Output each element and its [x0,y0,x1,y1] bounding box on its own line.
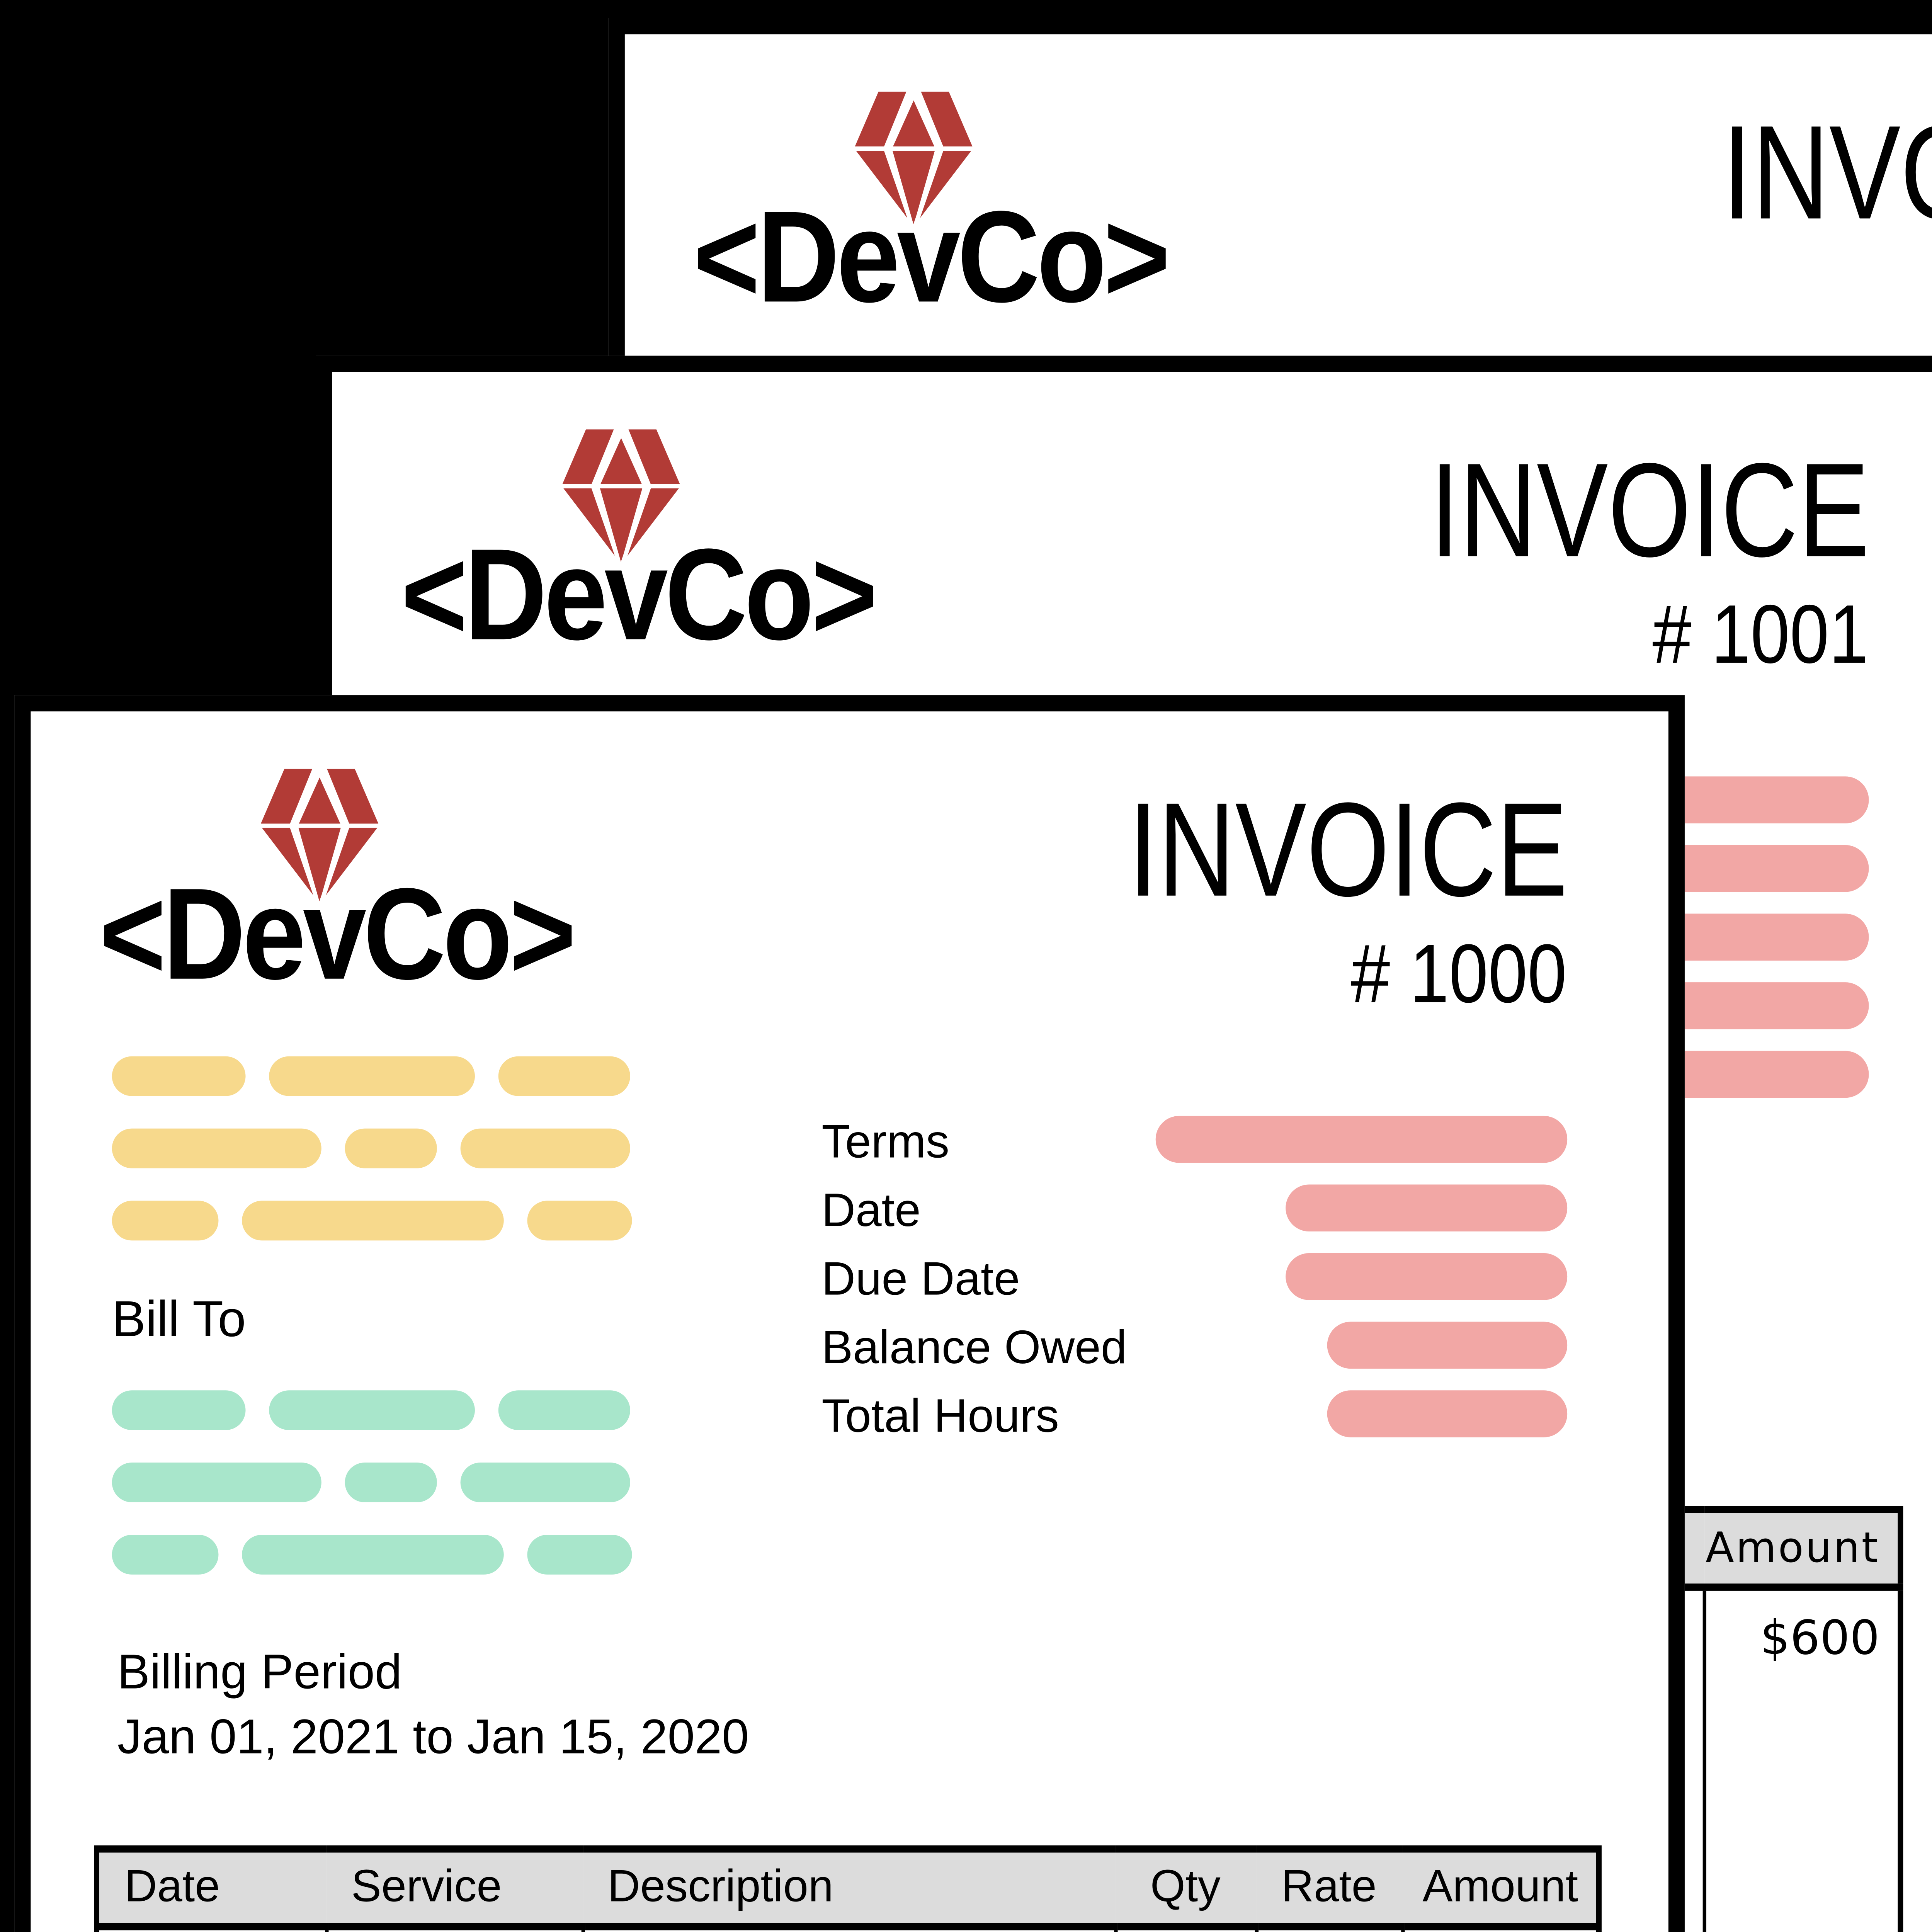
cell-rate: $100 [1256,1927,1402,1932]
address-placeholder-bar [112,1129,321,1168]
placeholder-row [112,1390,654,1430]
invoice-number: # 1001 [1123,592,1869,675]
bill-to-label: Bill To [112,1291,246,1349]
balance-owed-value-placeholder-bar [1327,1322,1568,1369]
address-placeholder-bar [242,1201,504,1241]
bill-to-placeholder-bar [269,1390,475,1430]
invoice-meta: Terms Date Due Date Balance Owed Total H… [821,1107,1567,1450]
date-value-placeholder-bar [1286,1184,1567,1231]
header-date: Date [97,1849,326,1927]
bill-to-placeholder-bar [112,1390,246,1430]
address-placeholder-bar [345,1129,437,1168]
address-placeholder-bar [527,1201,632,1241]
header-service: Service [326,1849,582,1927]
invoice-number: # 1000 [821,932,1567,1015]
header-rate: Rate [1256,1849,1402,1927]
devco-logo: <DevCo> [401,419,906,693]
address-placeholder-bar [269,1056,475,1096]
bill-to-placeholder-bar [112,1463,321,1502]
bill-to-placeholder-bar [345,1463,437,1502]
header-qty: Qty [1115,1849,1256,1927]
address-placeholder-bar [112,1056,246,1096]
meta-row-total-hours: Total Hours [821,1381,1567,1450]
devco-logo-text: <DevCo> [99,870,573,1000]
header-amount: Amount [1704,1510,1900,1587]
cell-amount: $800 [1402,1927,1599,1932]
header-description: Description [582,1849,1115,1927]
bill-to-placeholder-bar [112,1535,219,1575]
meta-row-due-date: Due Date [821,1244,1567,1313]
placeholder-row [112,1056,654,1096]
bill-to-placeholder-bar [527,1535,632,1575]
due-date-label: Due Date [821,1251,1020,1305]
meta-row-terms: Terms [821,1107,1567,1176]
invoice-page-1000: <DevCo> INVOICE # 1000 Terms Date Due Da… [14,695,1685,1932]
invoice-number: # 1002 [1416,255,1932,338]
screenshot-viewport: <DevCo> INVOICE # 1002 A [0,0,1932,1932]
invoice-title: INVOICE [821,784,1567,917]
total-hours-label: Total Hours [821,1389,1059,1443]
invoice-title: INVOICE [1416,107,1932,240]
date-label: Date [821,1183,921,1237]
cell-qty: 8 [1115,1927,1256,1932]
line-items-table: Date Service Description Qty Rate Amount… [94,1845,1602,1932]
company-address-placeholders [112,1056,654,1273]
invoice-title: INVOICE [1123,444,1869,578]
table-row: 1/1/21CodingAdd layout and components fo… [97,1927,1599,1932]
cell-amount: $600 [1704,1587,1900,1932]
total-hours-value-placeholder-bar [1327,1390,1568,1437]
bill-to-placeholder-bar [461,1463,630,1502]
cell-description: Add layout and components for the homepa… [582,1927,1115,1932]
terms-label: Terms [821,1114,949,1168]
header-amount: Amount [1402,1849,1599,1927]
address-placeholder-bar [461,1129,630,1168]
devco-logo: <DevCo> [99,759,605,1033]
due-date-value-placeholder-bar [1286,1253,1567,1300]
invoice-stack-canvas: <DevCo> INVOICE # 1002 A [0,0,1932,1932]
billing-period-range: Jan 01, 2021 to Jan 15, 2020 [117,1710,749,1766]
placeholder-row [112,1463,654,1502]
placeholder-row [112,1129,654,1168]
placeholder-row [112,1535,654,1575]
cell-service: Coding [326,1927,582,1932]
bill-to-placeholder-bar [242,1535,504,1575]
terms-value-placeholder-bar [1156,1116,1567,1163]
meta-row-date: Date [821,1175,1567,1244]
billing-period-label: Billing Period [117,1645,402,1701]
meta-row-balance-owed: Balance Owed [821,1313,1567,1381]
address-placeholder-bar [112,1201,219,1241]
table-header: Date Service Description Qty Rate Amount [97,1849,1599,1927]
cell-date: 1/1/21 [97,1927,326,1932]
bill-to-placeholder-bar [498,1390,630,1430]
bill-to-placeholders [112,1390,654,1607]
devco-logo: <DevCo> [693,81,1199,355]
devco-logo-text: <DevCo> [693,193,1167,323]
devco-logo-text: <DevCo> [401,531,874,661]
balance-owed-label: Balance Owed [821,1320,1127,1374]
address-placeholder-bar [498,1056,630,1096]
placeholder-row [112,1201,654,1241]
